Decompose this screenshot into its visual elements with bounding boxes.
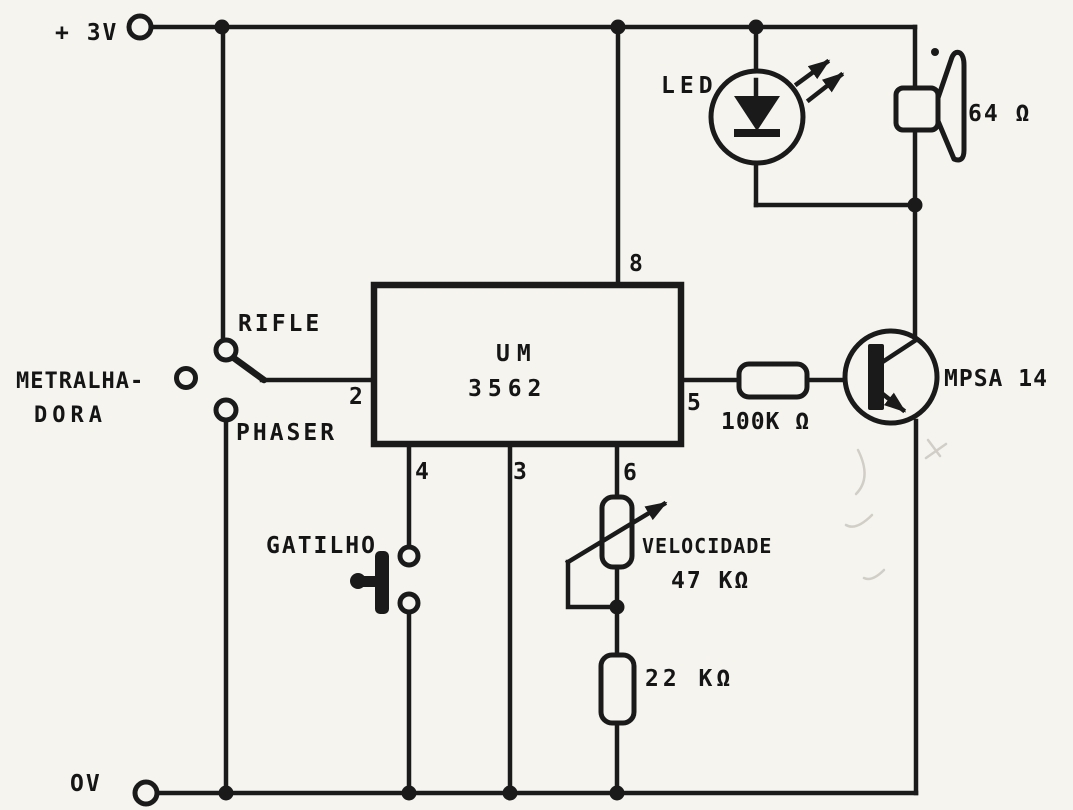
- ic-name-line2: 3562: [468, 376, 547, 402]
- ic-pin8-label: 8: [629, 251, 645, 277]
- smudge-mark: [856, 450, 865, 494]
- junction-rail-led: [749, 20, 764, 35]
- speaker-cone: [938, 52, 964, 160]
- phaser-contact[interactable]: [216, 400, 236, 420]
- mode-selector-switch[interactable]: [177, 340, 265, 420]
- smudge-mark: [864, 570, 884, 579]
- positive-terminal[interactable]: [129, 16, 151, 38]
- ic-pin3-label: 3: [513, 459, 529, 485]
- smudge-mark: [846, 515, 872, 527]
- ground-rail-label: OV: [70, 771, 102, 797]
- trigger-label: GATILHO: [266, 533, 377, 559]
- resistor-100k: [739, 364, 807, 397]
- rifle-label: RIFLE: [238, 311, 322, 337]
- pot-value-label: 47 KΩ: [671, 568, 750, 594]
- metralhadora-contact[interactable]: [177, 369, 196, 388]
- ic-pin2-label: 2: [349, 384, 365, 410]
- ic-pin4-label: 4: [415, 459, 431, 485]
- metralhadora-label-line1: METRALHA-: [16, 369, 144, 394]
- speaker-coil-box: [896, 88, 938, 130]
- junction-ground-22k: [610, 786, 625, 801]
- transistor-circle: [845, 331, 937, 423]
- resistor-22k-body: [601, 655, 634, 723]
- resistor-22k-label: 22 KΩ: [645, 666, 734, 692]
- speaker-symbol: [896, 48, 964, 160]
- trigger-contact-bottom: [400, 594, 418, 612]
- terminals: [129, 16, 157, 804]
- resistor-22k: [601, 655, 634, 723]
- scan-smudges: [846, 440, 946, 579]
- transistor-base-bar: [868, 344, 884, 410]
- junction-pot-wiper: [610, 600, 625, 615]
- trigger-contact-top: [400, 547, 418, 565]
- circuit-schematic: + 3V OV RIFLE METRALHA- DORA PHASER UM 3…: [0, 0, 1073, 810]
- trigger-plunger-knob[interactable]: [350, 573, 366, 589]
- rifle-contact[interactable]: [216, 340, 236, 360]
- ground-terminal[interactable]: [135, 782, 157, 804]
- junction-led-speaker: [908, 198, 923, 213]
- junction-rail-pin8: [611, 20, 626, 35]
- led-light-arrow-1: [797, 62, 827, 84]
- junction-ground-pin3: [503, 786, 518, 801]
- resistor-100k-body: [739, 364, 807, 397]
- junction-ground-trigger: [402, 786, 417, 801]
- led-symbol: [711, 62, 841, 163]
- ic-pin5-label: 5: [687, 390, 703, 416]
- transistor-mpsa14: [845, 331, 937, 423]
- led-label: LED: [661, 73, 718, 99]
- junction-rail-rifle: [215, 20, 230, 35]
- speaker-polarity-dot: [931, 48, 939, 56]
- ic-name-line1: UM: [496, 341, 538, 367]
- metralhadora-label-line2: DORA: [34, 403, 107, 428]
- pot-label: VELOCIDADE: [642, 534, 772, 558]
- schematic-page: + 3V OV RIFLE METRALHA- DORA PHASER UM 3…: [0, 0, 1073, 810]
- ic-pin6-label: 6: [623, 460, 639, 486]
- transistor-label: MPSA 14: [944, 366, 1048, 392]
- led-light-arrow-2: [809, 75, 841, 100]
- led-cathode-bar: [734, 129, 780, 137]
- phaser-label: PHASER: [236, 420, 337, 446]
- speaker-impedance-label: 64 Ω: [968, 101, 1031, 127]
- smudge-mark: [926, 440, 946, 458]
- switch-arm[interactable]: [231, 356, 264, 380]
- junction-ground-phaser: [219, 786, 234, 801]
- resistor-100k-label: 100K Ω: [721, 409, 810, 435]
- positive-rail-label: + 3V: [55, 20, 118, 46]
